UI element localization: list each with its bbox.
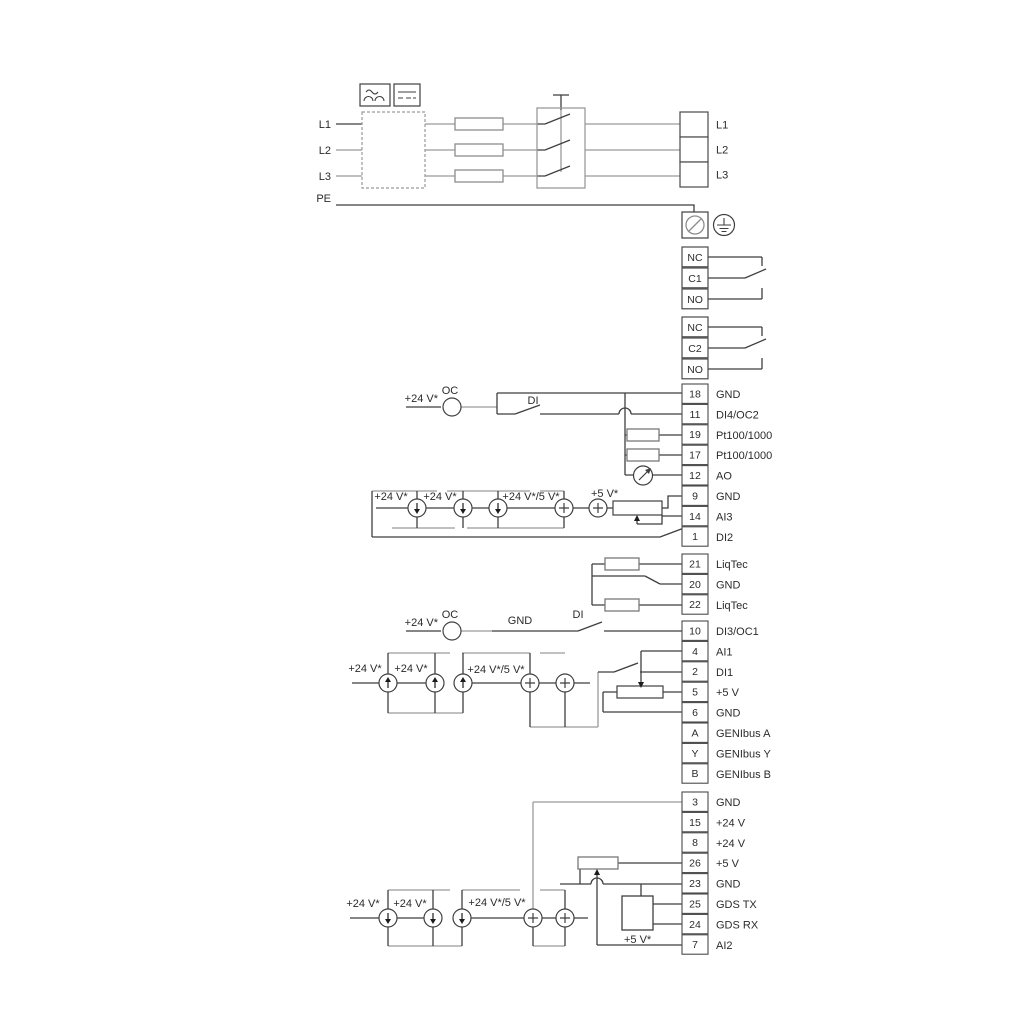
terminal-number: 5 [692, 687, 698, 699]
terminal-label: GDS RX [716, 919, 759, 931]
source-circle-up [379, 674, 397, 692]
resistor-pt100-2 [627, 449, 659, 461]
terminal-label: GND [716, 708, 741, 720]
terminal-number: B [691, 768, 698, 780]
terminal-label: AI2 [716, 940, 733, 952]
source-circle-down [454, 499, 472, 517]
label-24v-a: +24 V* [374, 491, 408, 503]
ao-meter-icon [634, 466, 653, 485]
fuse-l2 [455, 144, 503, 156]
label-di-3: DI [573, 609, 584, 621]
source-circle-plus [556, 674, 574, 692]
label-oc-2: OC [442, 385, 459, 397]
oc-circle-2 [443, 622, 461, 640]
resistor-liqtec-1 [605, 558, 639, 570]
terminal-label: DI4/OC2 [716, 409, 759, 421]
terminal-number: 7 [692, 939, 698, 951]
label-5v-b: +5 V* [624, 934, 652, 946]
fuse-l1 [455, 118, 503, 130]
rectifier-dashed-box [362, 112, 425, 188]
terminal-number: 6 [692, 707, 698, 719]
terminal-number: 14 [689, 511, 701, 523]
terminal-number: 24 [689, 919, 701, 931]
terminal-number: 1 [692, 531, 698, 543]
terminal-label: GND [716, 389, 741, 401]
terminal-number: 15 [689, 817, 701, 829]
label-24v-5v-b: +24 V*/5 V* [467, 664, 525, 676]
source-circle-down [379, 909, 397, 927]
terminal-label: DI2 [716, 532, 733, 544]
source-circle-up [426, 674, 444, 692]
terminal-number: 11 [690, 409, 701, 421]
pe-screw-terminal [682, 212, 708, 238]
terminal-label: GND [716, 879, 741, 891]
terminal-number: 25 [689, 898, 701, 910]
terminal-label: DI3/OC1 [716, 626, 759, 638]
label-24v-5v-a: +24 V*/5 V* [502, 491, 560, 503]
oc-circle-1 [443, 398, 461, 416]
source-circle-plus [524, 909, 542, 927]
resistor-liqtec-2 [605, 599, 639, 611]
terminal-number: 10 [689, 625, 701, 637]
power-out-cell [680, 137, 708, 162]
relay-cell-label: C1 [688, 273, 702, 285]
terminal-label: +24 V [716, 817, 746, 829]
terminal-label: AO [716, 471, 732, 483]
terminal-label: Pt100/1000 [716, 450, 772, 462]
label-l3-in: L3 [319, 171, 331, 183]
label-24v-c: +24 V* [348, 663, 382, 675]
potentiometer-ai1 [617, 682, 663, 698]
gds-sensor-box [622, 896, 653, 930]
terminal-number: Y [691, 748, 698, 760]
terminal-label: GND [716, 491, 741, 503]
terminal-label: +24 V [716, 838, 746, 850]
terminal-number: 3 [692, 796, 698, 808]
label-24v-5v-c: +24 V*/5 V* [468, 897, 526, 909]
wiring-diagram: L1 L2 L3 PE +24 V* OC DI +24 V* +24 V* +… [0, 0, 1024, 1024]
label-di-4: DI [528, 395, 539, 407]
terminal-label: AI1 [716, 646, 733, 658]
potentiometer-ai3 [613, 501, 662, 521]
label-24v-f: +24 V* [393, 898, 427, 910]
label-pe-in: PE [316, 193, 331, 205]
potentiometer-ai2 [578, 857, 618, 875]
relay-cell-label: NO [687, 294, 703, 306]
power-in-labels: L1 L2 L3 PE [316, 119, 331, 205]
power-out-cell [680, 162, 708, 187]
label-24v-b: +24 V* [423, 491, 457, 503]
relay-cell-label: NO [687, 364, 703, 376]
terminal-label: GND [716, 579, 741, 591]
terminal-number: 2 [692, 666, 698, 678]
terminal-number: 18 [689, 388, 701, 400]
source-circle-down [453, 909, 471, 927]
source-circle-plus [521, 674, 539, 692]
io2-annotations: +24 V* OC GND DI +24 V* +24 V* +24 V*/5 … [348, 609, 583, 676]
terminal-number: 22 [689, 599, 701, 611]
label-5v-a: +5 V* [591, 488, 619, 500]
label-24v-oc1: +24 V* [405, 617, 439, 629]
dc-symbol-icon [394, 84, 420, 106]
terminal-label: LiqTec [716, 559, 748, 571]
terminal-number: 8 [692, 837, 698, 849]
label-24v-oc2: +24 V* [405, 393, 439, 405]
terminal-label: LiqTec [716, 600, 748, 612]
terminal-number: 19 [689, 429, 701, 441]
wires-grey [336, 110, 682, 946]
terminal-number: 17 [689, 450, 701, 462]
terminal-label: GENIbus B [716, 769, 771, 781]
terminal-label: DI1 [716, 667, 733, 679]
terminal-label: GDS TX [716, 899, 757, 911]
terminal-label: AI3 [716, 511, 733, 523]
label-24v-e: +24 V* [346, 898, 380, 910]
relay-cell-label: C2 [688, 343, 702, 355]
terminal-number: 4 [692, 646, 698, 658]
terminal-number: 20 [689, 579, 701, 591]
terminal-number: 9 [692, 490, 698, 502]
wiring-diagram-page: { "power_in": ["L1", "L2", "L3", "PE"], … [0, 0, 1024, 1024]
label-gnd-wire: GND [508, 615, 533, 627]
relay-cell-label: NC [687, 252, 703, 264]
terminal-number: A [691, 727, 698, 739]
ac-symbol-icon [360, 84, 390, 106]
relay-cell-label: NC [687, 322, 703, 334]
resistor-pt100-1 [627, 429, 659, 441]
fuse-l3 [455, 170, 503, 182]
terminal-number: 26 [689, 858, 701, 870]
power-out-label: L1 [716, 120, 728, 132]
power-out-label: L2 [716, 145, 728, 157]
terminal-label: GND [716, 797, 741, 809]
terminal-label: GENIbus Y [716, 748, 771, 760]
terminal-label: Pt100/1000 [716, 430, 772, 442]
terminal-number: 21 [689, 558, 701, 570]
label-24v-d: +24 V* [394, 663, 428, 675]
terminal-label: +5 V [716, 687, 740, 699]
power-out-cell [680, 112, 708, 137]
terminal-number: 23 [689, 878, 701, 890]
label-oc-1: OC [442, 609, 459, 621]
label-l1-in: L1 [319, 119, 331, 131]
earth-ground-icon [714, 215, 735, 236]
terminal-number: 12 [689, 470, 701, 482]
source-circle-plus [589, 499, 607, 517]
label-l2-in: L2 [319, 145, 331, 157]
terminal-label: +5 V [716, 858, 740, 870]
power-out-label: L3 [716, 170, 728, 182]
source-circle-down [424, 909, 442, 927]
source-circle-plus [556, 909, 574, 927]
source-circle-up [454, 674, 472, 692]
terminal-label: GENIbus A [716, 728, 771, 740]
